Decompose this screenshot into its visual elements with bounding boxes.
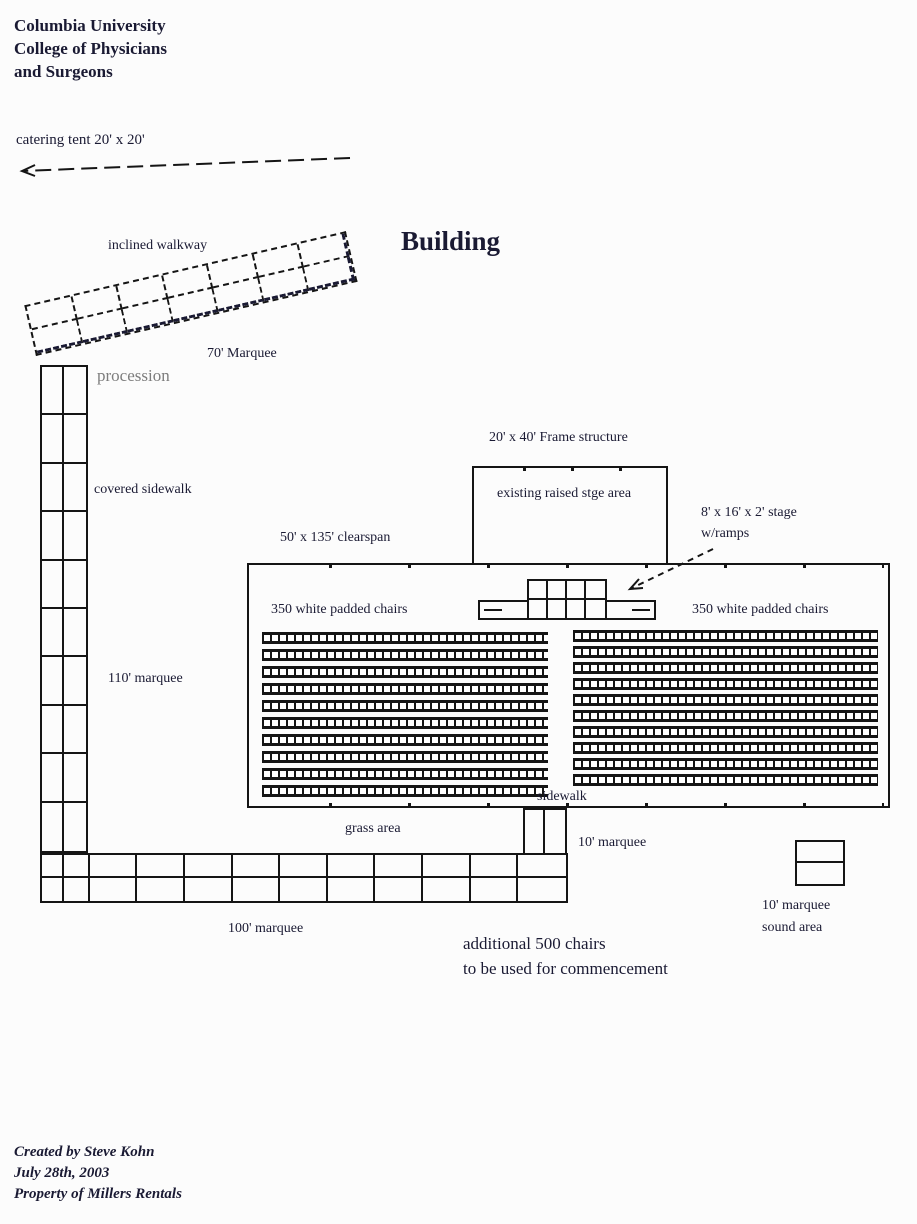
grid-cell: [567, 581, 586, 600]
grid-cell: [375, 878, 423, 901]
marquee-divider-line: [62, 853, 64, 903]
grid-cell: [64, 415, 86, 463]
existing-stage-label: existing raised stge area: [497, 486, 631, 502]
marquee-100-label: 100' marquee: [228, 921, 303, 937]
grid-cell: [42, 464, 64, 512]
chair-block-left: [262, 632, 548, 797]
chair-row: [573, 710, 878, 722]
grid-cell: [137, 878, 185, 901]
catering-tent-arrow: [22, 158, 350, 176]
grid-cell: [280, 855, 328, 878]
chairs-left-label: 350 white padded chairs: [271, 602, 407, 618]
chair-row: [573, 742, 878, 754]
covered-sidewalk-structure: [40, 365, 88, 853]
grid-cell: [64, 657, 86, 705]
chair-row: [573, 726, 878, 738]
grid-cell: [64, 367, 86, 415]
grid-cell: [64, 803, 86, 851]
footer-line-1: Created by Steve Kohn: [14, 1142, 182, 1163]
grid-cell: [328, 878, 376, 901]
grid-cell: [137, 855, 185, 878]
grid-cell: [64, 561, 86, 609]
grid-cell: [518, 878, 566, 901]
grid-cell: [586, 600, 605, 619]
additional-chairs-note: additional 500 chairs to be used for com…: [463, 931, 668, 981]
clearspan-ticks-top: [253, 564, 884, 568]
grid-cell: [233, 855, 281, 878]
grid-cell: [471, 855, 519, 878]
grid-cell: [545, 810, 565, 853]
grid-cell: [42, 657, 64, 705]
frame-structure-box: [472, 466, 668, 565]
chair-row: [262, 768, 548, 780]
grid-cell: [548, 581, 567, 600]
sound-marquee-label: 10' marquee: [762, 898, 830, 914]
additional-chairs-line-2: to be used for commencement: [463, 956, 668, 981]
frame-box-ticks: [478, 467, 662, 471]
ramp-edge-mark: [484, 609, 502, 611]
chair-row: [262, 700, 548, 712]
marquee-110-label: 110' marquee: [108, 671, 183, 687]
grid-cell: [525, 810, 545, 853]
grid-cell: [280, 878, 328, 901]
ramp-edge-mark: [632, 609, 650, 611]
chair-row: [262, 666, 548, 678]
grid-cell: [42, 878, 90, 901]
grid-cell: [42, 706, 64, 754]
chair-row: [262, 751, 548, 763]
footer-credit: Created by Steve Kohn July 28th, 2003 Pr…: [14, 1142, 182, 1205]
marquee-70-label: 70' Marquee: [207, 346, 277, 362]
grid-cell: [529, 581, 548, 600]
chair-row: [262, 734, 548, 746]
sidewalk-label: sidewalk: [537, 789, 587, 805]
grid-cell: [64, 609, 86, 657]
grid-cell: [42, 561, 64, 609]
inclined-walkway-label: inclined walkway: [108, 238, 207, 254]
stage-ramp-right: [605, 600, 656, 620]
sound-area-label: sound area: [762, 920, 822, 936]
additional-chairs-line-1: additional 500 chairs: [463, 931, 668, 956]
chair-row: [262, 683, 548, 695]
grid-cell: [64, 706, 86, 754]
catering-tent-label: catering tent 20' x 20': [16, 132, 145, 149]
chair-row: [573, 774, 878, 786]
grid-cell: [518, 855, 566, 878]
header-line-2: College of Physicians: [14, 37, 167, 60]
stage-ramps-label: w/ramps: [701, 526, 749, 542]
chair-row: [573, 678, 878, 690]
chair-row: [573, 630, 878, 642]
footer-line-3: Property of Millers Rentals: [14, 1184, 182, 1205]
site-plan-canvas: Columbia University College of Physician…: [0, 0, 917, 1224]
grid-cell: [797, 842, 843, 863]
building-label: Building: [401, 226, 500, 257]
grid-cell: [42, 609, 64, 657]
marquee-10-label: 10' marquee: [578, 835, 646, 851]
chair-row: [573, 694, 878, 706]
chair-row: [573, 758, 878, 770]
chair-block-right: [573, 630, 878, 786]
grid-cell: [328, 855, 376, 878]
grass-area-label: grass area: [345, 821, 401, 837]
chair-row: [573, 646, 878, 658]
stage-ramp-left: [478, 600, 529, 620]
grid-cell: [375, 855, 423, 878]
grid-cell: [42, 855, 90, 878]
grid-cell: [529, 600, 548, 619]
grid-cell: [64, 464, 86, 512]
grid-cell: [42, 415, 64, 463]
grid-cell: [233, 878, 281, 901]
header-line-1: Columbia University: [14, 14, 167, 37]
grid-cell: [42, 803, 64, 851]
chair-row: [573, 662, 878, 674]
covered-sidewalk-label: covered sidewalk: [94, 482, 192, 498]
grid-cell: [471, 878, 519, 901]
sound-area-structure: [795, 840, 845, 886]
header-line-3: and Surgeons: [14, 60, 167, 83]
grid-cell: [42, 512, 64, 560]
grid-cell: [42, 754, 64, 802]
grid-cell: [90, 878, 138, 901]
connector-marquee-structure: [523, 808, 567, 855]
chair-row: [262, 649, 548, 661]
grid-cell: [586, 581, 605, 600]
grid-cell: [567, 600, 586, 619]
clearspan-label: 50' x 135' clearspan: [280, 530, 390, 546]
grid-cell: [64, 754, 86, 802]
grid-cell: [548, 600, 567, 619]
chair-row: [262, 632, 548, 644]
stage-size-label: 8' x 16' x 2' stage: [701, 505, 797, 521]
grid-cell: [185, 855, 233, 878]
procession-label: procession: [97, 366, 170, 386]
grid-cell: [797, 863, 843, 884]
chairs-right-label: 350 white padded chairs: [692, 602, 828, 618]
grid-cell: [42, 367, 64, 415]
stage-platform-structure: [527, 579, 607, 620]
grid-cell: [185, 878, 233, 901]
grid-cell: [64, 512, 86, 560]
frame-structure-label: 20' x 40' Frame structure: [489, 430, 628, 446]
chair-row: [262, 717, 548, 729]
header-title: Columbia University College of Physician…: [14, 14, 167, 83]
chair-row: [262, 785, 548, 797]
grid-cell: [423, 855, 471, 878]
horizontal-marquee-structure: [40, 853, 568, 903]
grid-cell: [423, 878, 471, 901]
grid-cell: [90, 855, 138, 878]
footer-line-2: July 28th, 2003: [14, 1163, 182, 1184]
